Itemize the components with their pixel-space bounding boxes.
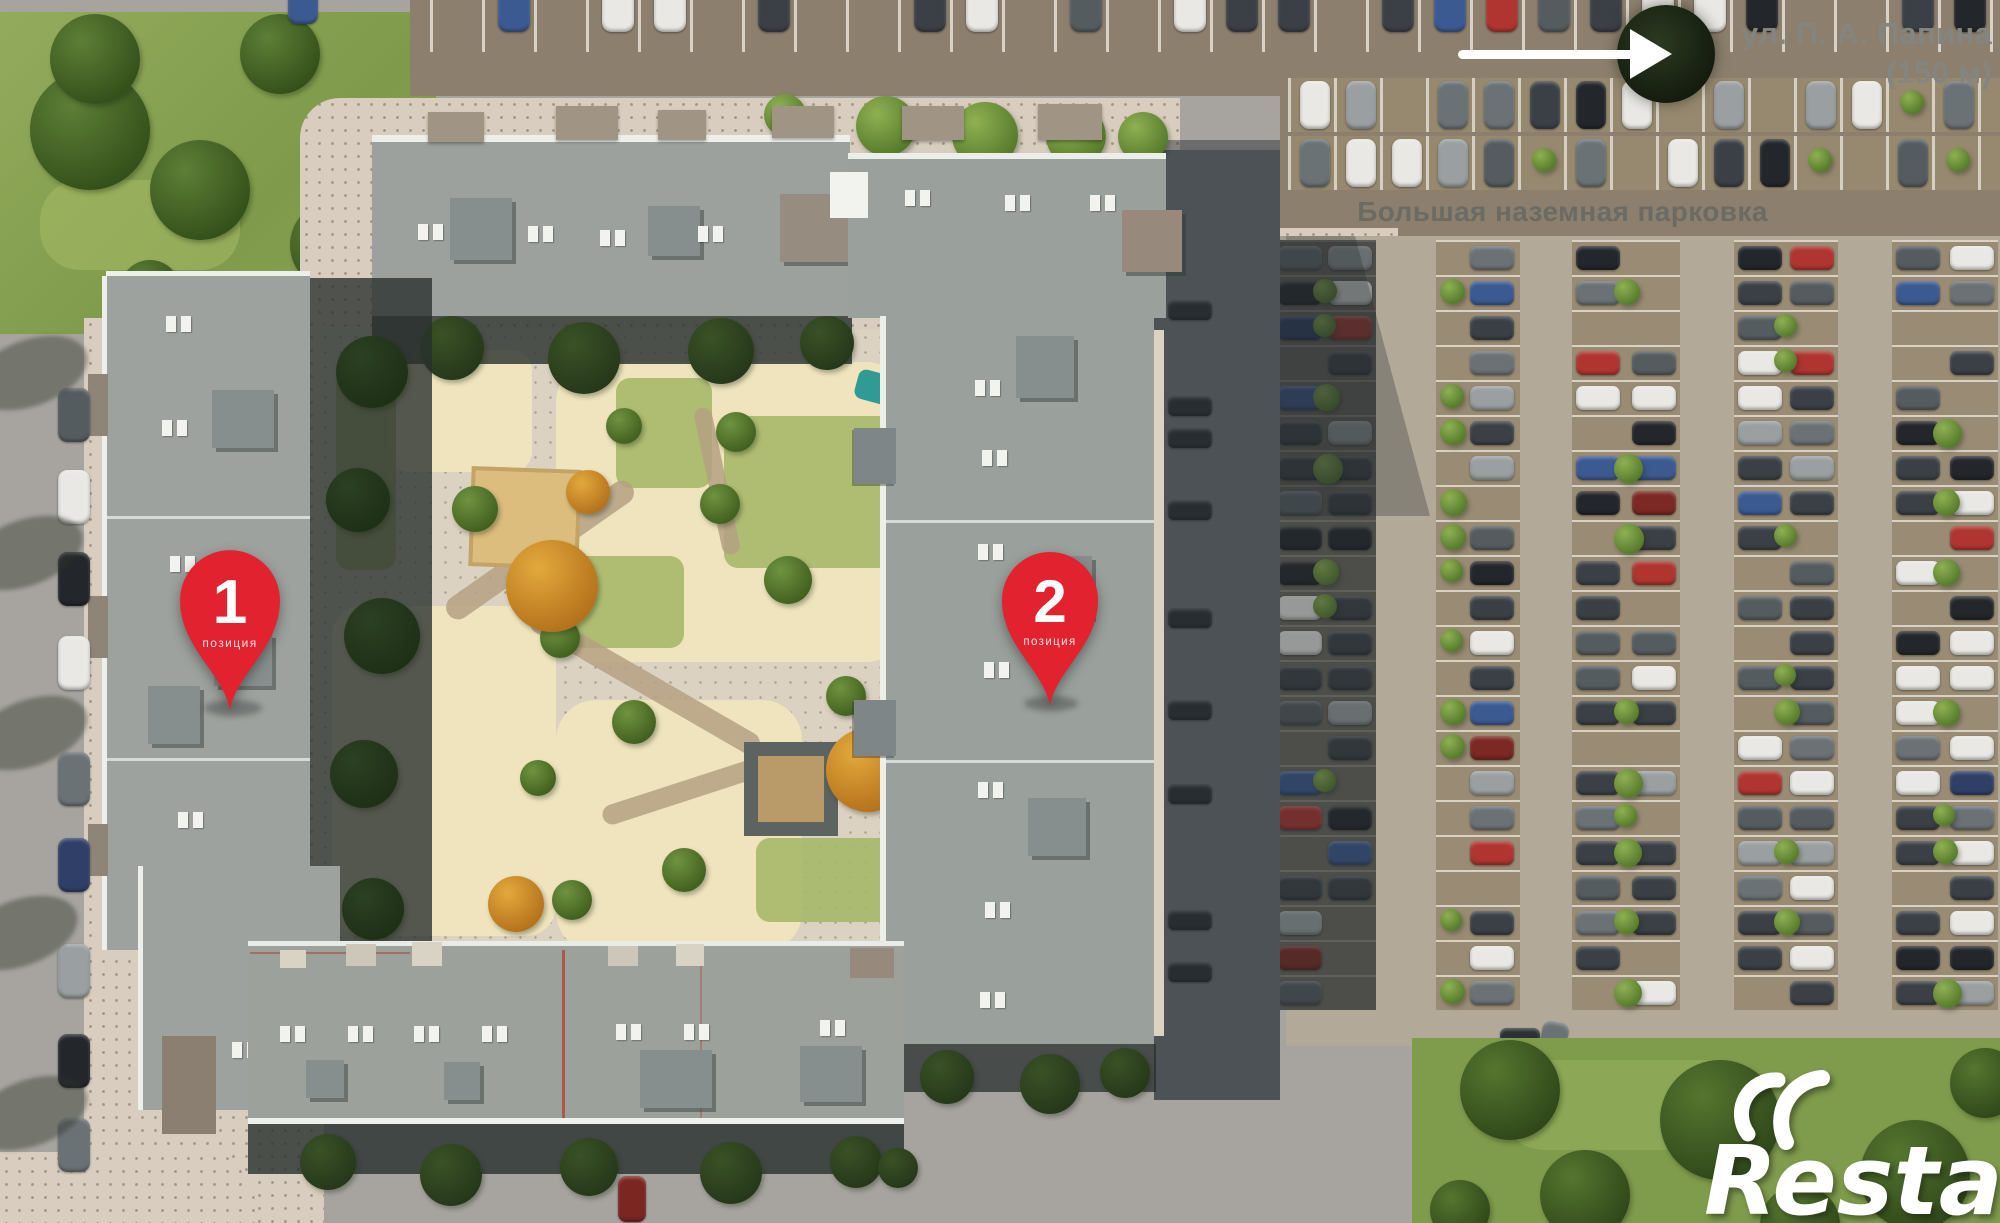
tree xyxy=(300,1134,356,1190)
car xyxy=(1790,421,1834,445)
roof-detail xyxy=(850,948,894,978)
entrance-canopy xyxy=(88,596,108,658)
car xyxy=(1470,281,1514,305)
car xyxy=(1738,281,1782,305)
car xyxy=(1790,281,1834,305)
car xyxy=(1632,386,1676,410)
car xyxy=(1470,526,1514,550)
entrance-canopy xyxy=(88,374,108,436)
tree xyxy=(1614,979,1642,1007)
roof-seam xyxy=(106,758,310,761)
car xyxy=(1950,631,1994,655)
car xyxy=(1790,946,1834,970)
tree xyxy=(50,14,140,104)
roof-unit xyxy=(1028,798,1086,856)
roof-parapet xyxy=(848,153,1166,159)
car xyxy=(1576,386,1620,410)
tree xyxy=(1460,1040,1560,1140)
car xyxy=(1896,771,1940,795)
car xyxy=(1790,631,1834,655)
car xyxy=(1738,596,1782,620)
tree xyxy=(506,540,598,632)
car xyxy=(1950,246,1994,270)
car xyxy=(1790,736,1834,760)
car xyxy=(1470,596,1514,620)
roof-vent xyxy=(1020,195,1030,211)
balcony-block xyxy=(854,428,896,484)
tree xyxy=(488,876,544,932)
car xyxy=(58,838,90,892)
car xyxy=(1382,0,1414,32)
entrance-canopy xyxy=(658,110,706,140)
car xyxy=(1470,631,1514,655)
car xyxy=(1470,701,1514,725)
car xyxy=(1470,246,1514,270)
roof-detail xyxy=(676,944,704,966)
roof-vent xyxy=(418,224,428,240)
tree xyxy=(1774,699,1800,725)
tree xyxy=(342,878,404,940)
roof-vent xyxy=(985,902,995,918)
roof-vent xyxy=(162,420,172,436)
roof-vent xyxy=(982,450,992,466)
car xyxy=(1530,81,1560,129)
tree xyxy=(700,484,740,524)
roof-vent xyxy=(975,380,985,396)
parking-area-label: Большая наземная парковка xyxy=(1290,196,1835,228)
tree xyxy=(1020,1054,1080,1114)
pergola-floor xyxy=(758,756,824,822)
roof-vent xyxy=(232,1042,242,1058)
tree xyxy=(548,322,620,394)
tree xyxy=(1614,454,1643,483)
car xyxy=(1470,316,1514,340)
car xyxy=(1898,139,1928,187)
tree xyxy=(326,468,390,532)
car xyxy=(1896,911,1940,935)
car xyxy=(758,0,790,32)
tree xyxy=(452,486,498,532)
entrance-canopy xyxy=(556,106,618,140)
tree xyxy=(344,598,420,674)
car xyxy=(1484,139,1514,187)
roof-vent xyxy=(543,226,553,242)
roof-vent xyxy=(995,992,1005,1008)
car xyxy=(1576,491,1620,515)
car xyxy=(1950,946,1994,970)
tree xyxy=(566,470,610,514)
roof-vent xyxy=(993,782,1003,798)
car xyxy=(1896,666,1940,690)
roof-vent xyxy=(997,450,1007,466)
roof-detail xyxy=(412,942,442,966)
car xyxy=(1484,81,1514,129)
car xyxy=(1470,351,1514,375)
roof-unit xyxy=(640,1050,712,1108)
car xyxy=(1174,0,1206,32)
roof-vent xyxy=(616,1024,626,1040)
pin-1-caption: позиция xyxy=(202,636,257,650)
car xyxy=(1434,0,1466,32)
tree xyxy=(1774,909,1800,935)
car xyxy=(1790,596,1834,620)
roof-vent xyxy=(978,544,988,560)
car xyxy=(1470,421,1514,445)
car xyxy=(1470,981,1514,1005)
roof-vent xyxy=(905,190,915,206)
roof-vent xyxy=(699,1024,709,1040)
tree xyxy=(1532,148,1556,172)
car xyxy=(1738,806,1782,830)
tree xyxy=(1440,699,1466,725)
car xyxy=(58,944,90,998)
car xyxy=(58,388,90,442)
tree xyxy=(1900,90,1924,114)
roof-unit xyxy=(1122,210,1182,272)
car xyxy=(1538,0,1570,32)
car xyxy=(1632,631,1676,655)
car xyxy=(1470,736,1514,760)
tree xyxy=(1774,349,1797,372)
tree xyxy=(560,1138,618,1196)
roof-vent xyxy=(835,1020,845,1036)
roof-unit xyxy=(444,1062,480,1100)
tree xyxy=(1774,524,1797,547)
roof-seam xyxy=(250,952,410,954)
roof-unit xyxy=(1016,336,1074,398)
roof-vent xyxy=(429,1026,439,1042)
car xyxy=(1738,491,1782,515)
tree xyxy=(330,740,398,808)
car xyxy=(1790,246,1834,270)
car xyxy=(1470,946,1514,970)
tree xyxy=(1774,839,1799,864)
car xyxy=(1438,139,1468,187)
roof-parapet xyxy=(138,866,143,1110)
balcony-block xyxy=(854,700,896,756)
roof-parapet xyxy=(248,1118,904,1124)
map-pin-position-2[interactable]: 2 позиция xyxy=(1000,548,1100,708)
car xyxy=(1470,806,1514,830)
pin-1-number: 1 xyxy=(213,568,248,637)
car xyxy=(288,0,318,24)
car xyxy=(618,1176,646,1222)
car xyxy=(1300,81,1330,129)
car xyxy=(1896,736,1940,760)
tree xyxy=(1946,148,1970,172)
tree xyxy=(1614,839,1642,867)
tree xyxy=(150,140,250,240)
car xyxy=(1590,0,1622,32)
tree xyxy=(700,1142,762,1204)
arrow-head-icon xyxy=(1630,29,1672,79)
car xyxy=(1790,806,1834,830)
tree xyxy=(1440,279,1465,304)
roof-unit xyxy=(648,206,700,256)
car xyxy=(1470,386,1514,410)
watermark-swoosh-icon xyxy=(1741,1080,1778,1134)
tree xyxy=(1808,148,1832,172)
car xyxy=(58,636,90,690)
car xyxy=(1300,139,1330,187)
entrance-canopy xyxy=(88,824,108,876)
roof-vent xyxy=(600,230,610,246)
tree xyxy=(1933,559,1960,586)
street-sign: ул. П. А. Папина (150 м) xyxy=(1712,14,1992,92)
car xyxy=(1226,0,1258,32)
tree xyxy=(240,14,320,94)
car xyxy=(58,752,90,806)
tree xyxy=(552,880,592,920)
tree xyxy=(920,1050,974,1104)
map-pin-position-1[interactable]: 1 позиция xyxy=(178,546,282,712)
car xyxy=(1576,946,1620,970)
car xyxy=(1470,911,1514,935)
roof-vent xyxy=(178,812,188,828)
roof-detail xyxy=(280,950,306,968)
car xyxy=(1714,139,1744,187)
roof-seam xyxy=(562,950,565,1118)
building-shadow xyxy=(1154,140,1280,1100)
car xyxy=(1668,139,1698,187)
roof-unit xyxy=(306,1060,344,1098)
car xyxy=(1738,946,1782,970)
tree xyxy=(1440,734,1465,759)
tree xyxy=(1614,769,1643,798)
tree xyxy=(520,760,556,796)
car xyxy=(1738,386,1782,410)
car xyxy=(1950,526,1994,550)
roof-detail xyxy=(830,172,868,218)
car xyxy=(58,470,90,524)
car xyxy=(1632,491,1676,515)
car xyxy=(1576,246,1620,270)
car xyxy=(498,0,530,32)
roof-vent xyxy=(193,812,203,828)
tree xyxy=(1614,804,1637,827)
roof-vent xyxy=(280,1026,290,1042)
tree xyxy=(878,1148,918,1188)
car xyxy=(1392,139,1422,187)
watermark-logo: Restate xyxy=(1702,1062,2000,1222)
car xyxy=(1632,421,1676,445)
car xyxy=(1896,246,1940,270)
roof-vent xyxy=(684,1024,694,1040)
car xyxy=(1950,596,1994,620)
car xyxy=(1632,666,1676,690)
roof-parapet xyxy=(880,316,886,1044)
roof-vent xyxy=(698,226,708,242)
roof-vent xyxy=(295,1026,305,1042)
car xyxy=(914,0,946,32)
entrance-canopy xyxy=(1038,104,1102,140)
roof-vent xyxy=(984,662,994,678)
car xyxy=(1576,561,1620,585)
roof-vent xyxy=(181,316,191,332)
tree xyxy=(336,336,408,408)
car xyxy=(1070,0,1102,32)
car xyxy=(1576,139,1606,187)
car xyxy=(1950,876,1994,900)
building-roof xyxy=(848,158,1166,318)
site-plan-image: ул. П. А. Папина (150 м) Большая наземна… xyxy=(0,0,2000,1223)
car xyxy=(1950,351,1994,375)
car xyxy=(1950,666,1994,690)
roof-unit xyxy=(800,1046,862,1102)
tree xyxy=(1440,419,1466,445)
car xyxy=(1790,386,1834,410)
tree xyxy=(612,700,656,744)
entrance-canopy xyxy=(902,106,964,140)
car xyxy=(1470,456,1514,480)
tree xyxy=(800,316,854,370)
car xyxy=(1632,351,1676,375)
car xyxy=(1950,456,1994,480)
roof-vent xyxy=(1090,195,1100,211)
car xyxy=(1950,806,1994,830)
watermark-text: Restate xyxy=(1704,1127,2000,1222)
tree xyxy=(688,318,754,384)
street-name-label: ул. П. А. Папина xyxy=(1712,14,1992,53)
roof-vent xyxy=(177,420,187,436)
roof-vent xyxy=(348,1026,358,1042)
car xyxy=(1896,456,1940,480)
car xyxy=(1790,456,1834,480)
roof-seam xyxy=(106,516,310,519)
entrance-canopy xyxy=(428,112,484,142)
car xyxy=(1576,876,1620,900)
roof-vent xyxy=(1005,195,1015,211)
tree xyxy=(830,1136,882,1188)
car xyxy=(1950,771,1994,795)
car xyxy=(1896,946,1940,970)
roof-vent xyxy=(820,1020,830,1036)
car xyxy=(1470,666,1514,690)
roof-vent xyxy=(980,992,990,1008)
car xyxy=(1576,631,1620,655)
car xyxy=(1738,246,1782,270)
roof-vent xyxy=(713,226,723,242)
tree xyxy=(606,408,642,444)
roof-unit xyxy=(450,198,512,260)
car xyxy=(1576,666,1620,690)
arrow-shaft xyxy=(1458,50,1636,59)
tree xyxy=(1933,699,1960,726)
roof-vent xyxy=(990,380,1000,396)
car xyxy=(1632,876,1676,900)
tree xyxy=(1440,524,1466,550)
tree xyxy=(1440,629,1463,652)
car xyxy=(1470,561,1514,585)
roof-vent xyxy=(615,230,625,246)
roof-vent xyxy=(631,1024,641,1040)
tree xyxy=(764,556,812,604)
tree xyxy=(716,412,756,452)
roof-seam xyxy=(884,520,1154,523)
car xyxy=(1576,351,1620,375)
car xyxy=(1278,0,1310,32)
tree xyxy=(1100,1048,1150,1098)
roof-detail xyxy=(346,944,376,966)
car xyxy=(1790,666,1834,690)
roof-unit xyxy=(212,390,274,448)
roof-vent xyxy=(482,1026,492,1042)
car xyxy=(1470,771,1514,795)
car xyxy=(1346,81,1376,129)
entrance-canopy xyxy=(772,106,834,138)
car xyxy=(1896,631,1940,655)
car xyxy=(1632,561,1676,585)
car xyxy=(1790,981,1834,1005)
roof-vent xyxy=(363,1026,373,1042)
roof-vent xyxy=(497,1026,507,1042)
car xyxy=(1738,456,1782,480)
roof-unit xyxy=(162,1036,216,1134)
roof-seam xyxy=(884,760,1154,763)
roof-detail xyxy=(608,946,638,966)
car xyxy=(1346,139,1376,187)
roof-vent xyxy=(166,316,176,332)
roof-vent xyxy=(528,226,538,242)
roof-vent xyxy=(920,190,930,206)
car xyxy=(1760,139,1790,187)
car xyxy=(1950,736,1994,760)
building-roof xyxy=(372,140,850,316)
tree xyxy=(1614,524,1644,554)
pin-2-caption: позиция xyxy=(1023,636,1076,648)
car xyxy=(1790,876,1834,900)
roof-vent xyxy=(414,1026,424,1042)
tree xyxy=(1614,909,1639,934)
car xyxy=(1950,911,1994,935)
car xyxy=(966,0,998,32)
car xyxy=(1738,771,1782,795)
car xyxy=(1738,736,1782,760)
car xyxy=(1576,81,1606,129)
car xyxy=(1950,281,1994,305)
roof-vent xyxy=(1000,902,1010,918)
car xyxy=(1790,771,1834,795)
roof-vent xyxy=(978,782,988,798)
car xyxy=(1790,561,1834,585)
car xyxy=(1896,281,1940,305)
car xyxy=(602,0,634,32)
tree xyxy=(662,848,706,892)
street-distance-label: (150 м) xyxy=(1712,53,1992,92)
tree xyxy=(1614,699,1639,724)
tree xyxy=(1933,489,1960,516)
tree xyxy=(420,1144,482,1206)
pin-2-number: 2 xyxy=(1033,568,1066,635)
car xyxy=(1438,81,1468,129)
roof-vent xyxy=(433,224,443,240)
car xyxy=(1738,876,1782,900)
sidewalk xyxy=(0,1152,255,1223)
car xyxy=(1470,841,1514,865)
car xyxy=(654,0,686,32)
car xyxy=(1896,386,1940,410)
car xyxy=(1576,596,1620,620)
car xyxy=(1790,491,1834,515)
car xyxy=(1486,0,1518,32)
roof-vent xyxy=(1105,195,1115,211)
roof-parapet xyxy=(106,271,310,276)
car xyxy=(1738,421,1782,445)
